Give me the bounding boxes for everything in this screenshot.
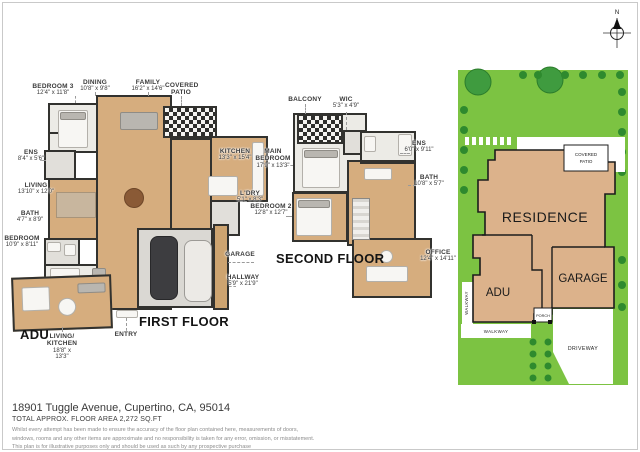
room-label-covered-patio: COVERED PATIO bbox=[165, 82, 197, 97]
site-walkway-bottom-label: WALKWAY bbox=[484, 329, 509, 334]
dining-table bbox=[124, 188, 144, 208]
room-dims: 12'4" x 11'8" bbox=[29, 90, 77, 97]
room-dims: 5'3" x 4'9" bbox=[328, 103, 364, 110]
first-floor-title: FIRST FLOOR bbox=[139, 314, 229, 329]
site-porch-label: PORCH bbox=[536, 314, 550, 318]
room-name: GARAGE bbox=[220, 251, 260, 258]
floor-plan-sheet: BEDROOM 3 12'4" x 11'8" DINING 10'8" x 9… bbox=[0, 0, 640, 452]
second-floor-title: SECOND FLOOR bbox=[276, 251, 384, 266]
site-residence-label: RESIDENCE bbox=[502, 209, 588, 225]
room-label-living: LIVING 13'10" x 12'0" bbox=[14, 182, 58, 196]
room-label-ens: ENS 8'4" x 5'6" bbox=[14, 149, 48, 163]
room-label-entry: ENTRY bbox=[111, 331, 141, 338]
office-desk bbox=[366, 266, 408, 282]
room-dims: 18'8" x 13'3" bbox=[46, 348, 78, 361]
compass: N bbox=[598, 6, 636, 52]
room-label-garage: GARAGE bbox=[220, 251, 260, 258]
interior-wall bbox=[360, 162, 416, 164]
leader-line bbox=[62, 327, 63, 332]
room-dims: 10'9" x 8'11" bbox=[1, 242, 43, 249]
room-label-bath: BATH 4'7" x 8'9" bbox=[10, 210, 50, 224]
room-dims: 6'0" x 9'11" bbox=[399, 147, 439, 154]
bed-pillows bbox=[60, 112, 86, 120]
covered-patio-outline bbox=[564, 145, 608, 171]
adu-building bbox=[11, 274, 113, 331]
adu-table bbox=[58, 298, 77, 317]
room-label-bedroom-2: BEDROOM 2 12'8" x 12'7" bbox=[248, 203, 294, 217]
bath-fixture bbox=[47, 242, 61, 252]
leader-line bbox=[305, 104, 306, 114]
room-label-laundry: L'DRY 5'1" x 8'3" bbox=[231, 190, 269, 204]
room-name: MAIN BEDROOM bbox=[255, 148, 291, 163]
car-light bbox=[184, 240, 212, 302]
car-dark bbox=[150, 236, 178, 300]
room-label-ens: ENS 6'0" x 9'11" bbox=[399, 140, 439, 154]
sofa-furniture bbox=[120, 112, 158, 130]
leader-line bbox=[75, 96, 76, 103]
room-label-balcony: BALCONY bbox=[285, 96, 325, 103]
disclaimer-line: Whilst every attempt has been made to en… bbox=[12, 426, 314, 435]
total-floor-area: TOTAL APPROX. FLOOR AREA 2,272 SQ.FT bbox=[12, 416, 162, 423]
room-name: COVERED PATIO bbox=[165, 82, 197, 97]
room-block-hall-connector bbox=[170, 138, 212, 230]
room-name: BALCONY bbox=[285, 96, 325, 103]
room-name: ENTRY bbox=[111, 331, 141, 338]
room-block-balcony bbox=[297, 114, 343, 144]
stairs bbox=[352, 198, 370, 240]
bath-fixture bbox=[364, 168, 392, 180]
site-walkway-left-label: WALKWAY bbox=[464, 291, 469, 315]
room-dims: 4'7" x 8'9" bbox=[10, 217, 50, 224]
living-rug bbox=[56, 192, 96, 218]
bed-pillows bbox=[298, 200, 330, 208]
room-dims: 13'3" x 15'4" bbox=[212, 155, 258, 162]
ens-fixture bbox=[364, 136, 376, 152]
adu-kitchen-counter bbox=[77, 282, 105, 293]
adu-title: ADU bbox=[20, 327, 49, 342]
site-covered-patio-label-1: COVERED bbox=[575, 152, 598, 157]
site-driveway-label: DRIVEWAY bbox=[568, 346, 598, 352]
porch-post bbox=[532, 320, 536, 324]
room-label-bedroom: BEDROOM 10'9" x 8'11" bbox=[1, 235, 43, 249]
room-dims: 10'8" x 9'8" bbox=[73, 86, 117, 93]
leader-line bbox=[181, 96, 182, 106]
bed-pillows bbox=[304, 150, 338, 158]
property-address: 18901 Tuggle Avenue, Cupertino, CA, 9501… bbox=[12, 402, 230, 414]
interior-wall bbox=[96, 150, 98, 180]
room-dims: 17'9" x 13'3" bbox=[255, 163, 291, 170]
site-covered-patio-label-2: PATIO bbox=[580, 159, 593, 164]
disclaimer: Whilst every attempt has been made to en… bbox=[12, 426, 314, 452]
leader-line bbox=[126, 318, 127, 331]
room-label-kitchen: KITCHEN 13'3" x 15'4" bbox=[212, 148, 258, 162]
room-block-ens bbox=[44, 150, 76, 180]
disclaimer-line: This plan is for illustrative purposes o… bbox=[12, 443, 314, 452]
leader-line bbox=[346, 112, 347, 130]
room-dims: 10'8" x 5'7" bbox=[409, 181, 449, 188]
room-dims: 12'8" x 12'7" bbox=[248, 210, 294, 217]
site-adu-label: ADU bbox=[486, 287, 510, 299]
room-label-wic: WIC 5'3" x 4'9" bbox=[328, 96, 364, 110]
room-label-hallway: HALLWAY 5'9" x 21'9" bbox=[222, 274, 264, 288]
adu-bed bbox=[21, 286, 50, 311]
bath-fixture bbox=[64, 244, 76, 256]
room-dims: 8'4" x 5'6" bbox=[14, 156, 48, 163]
disclaimer-line: windows, rooms and any other items are a… bbox=[12, 435, 314, 444]
tree-icon bbox=[465, 69, 491, 95]
leader-line bbox=[228, 262, 254, 263]
room-label-adu-living-kitchen: LIVING/ KITCHEN 18'8" x 13'3" bbox=[46, 333, 78, 361]
room-dims: 13'10" x 12'0" bbox=[14, 189, 58, 196]
site-garage-label: GARAGE bbox=[558, 273, 608, 285]
room-block-covered-patio bbox=[163, 106, 217, 138]
porch-post bbox=[548, 320, 552, 324]
room-label-dining: DINING 10'8" x 9'8" bbox=[73, 79, 117, 93]
room-label-bedroom-3: BEDROOM 3 12'4" x 11'8" bbox=[29, 83, 77, 97]
compass-needle-icon bbox=[613, 18, 621, 29]
compass-north-label: N bbox=[615, 10, 619, 16]
room-label-bath2: BATH 10'8" x 5'7" bbox=[409, 174, 449, 188]
room-label-main-bedroom: MAIN BEDROOM 17'9" x 13'3" bbox=[255, 148, 291, 169]
tree-icon bbox=[537, 67, 563, 93]
entry-step bbox=[116, 310, 138, 318]
room-block-hallway bbox=[213, 224, 229, 310]
room-dims: 5'9" x 21'9" bbox=[222, 281, 264, 288]
site-plan: RESIDENCE GARAGE ADU COVERED PATIO PORCH… bbox=[452, 60, 636, 394]
room-name: LIVING/ KITCHEN bbox=[46, 333, 78, 348]
